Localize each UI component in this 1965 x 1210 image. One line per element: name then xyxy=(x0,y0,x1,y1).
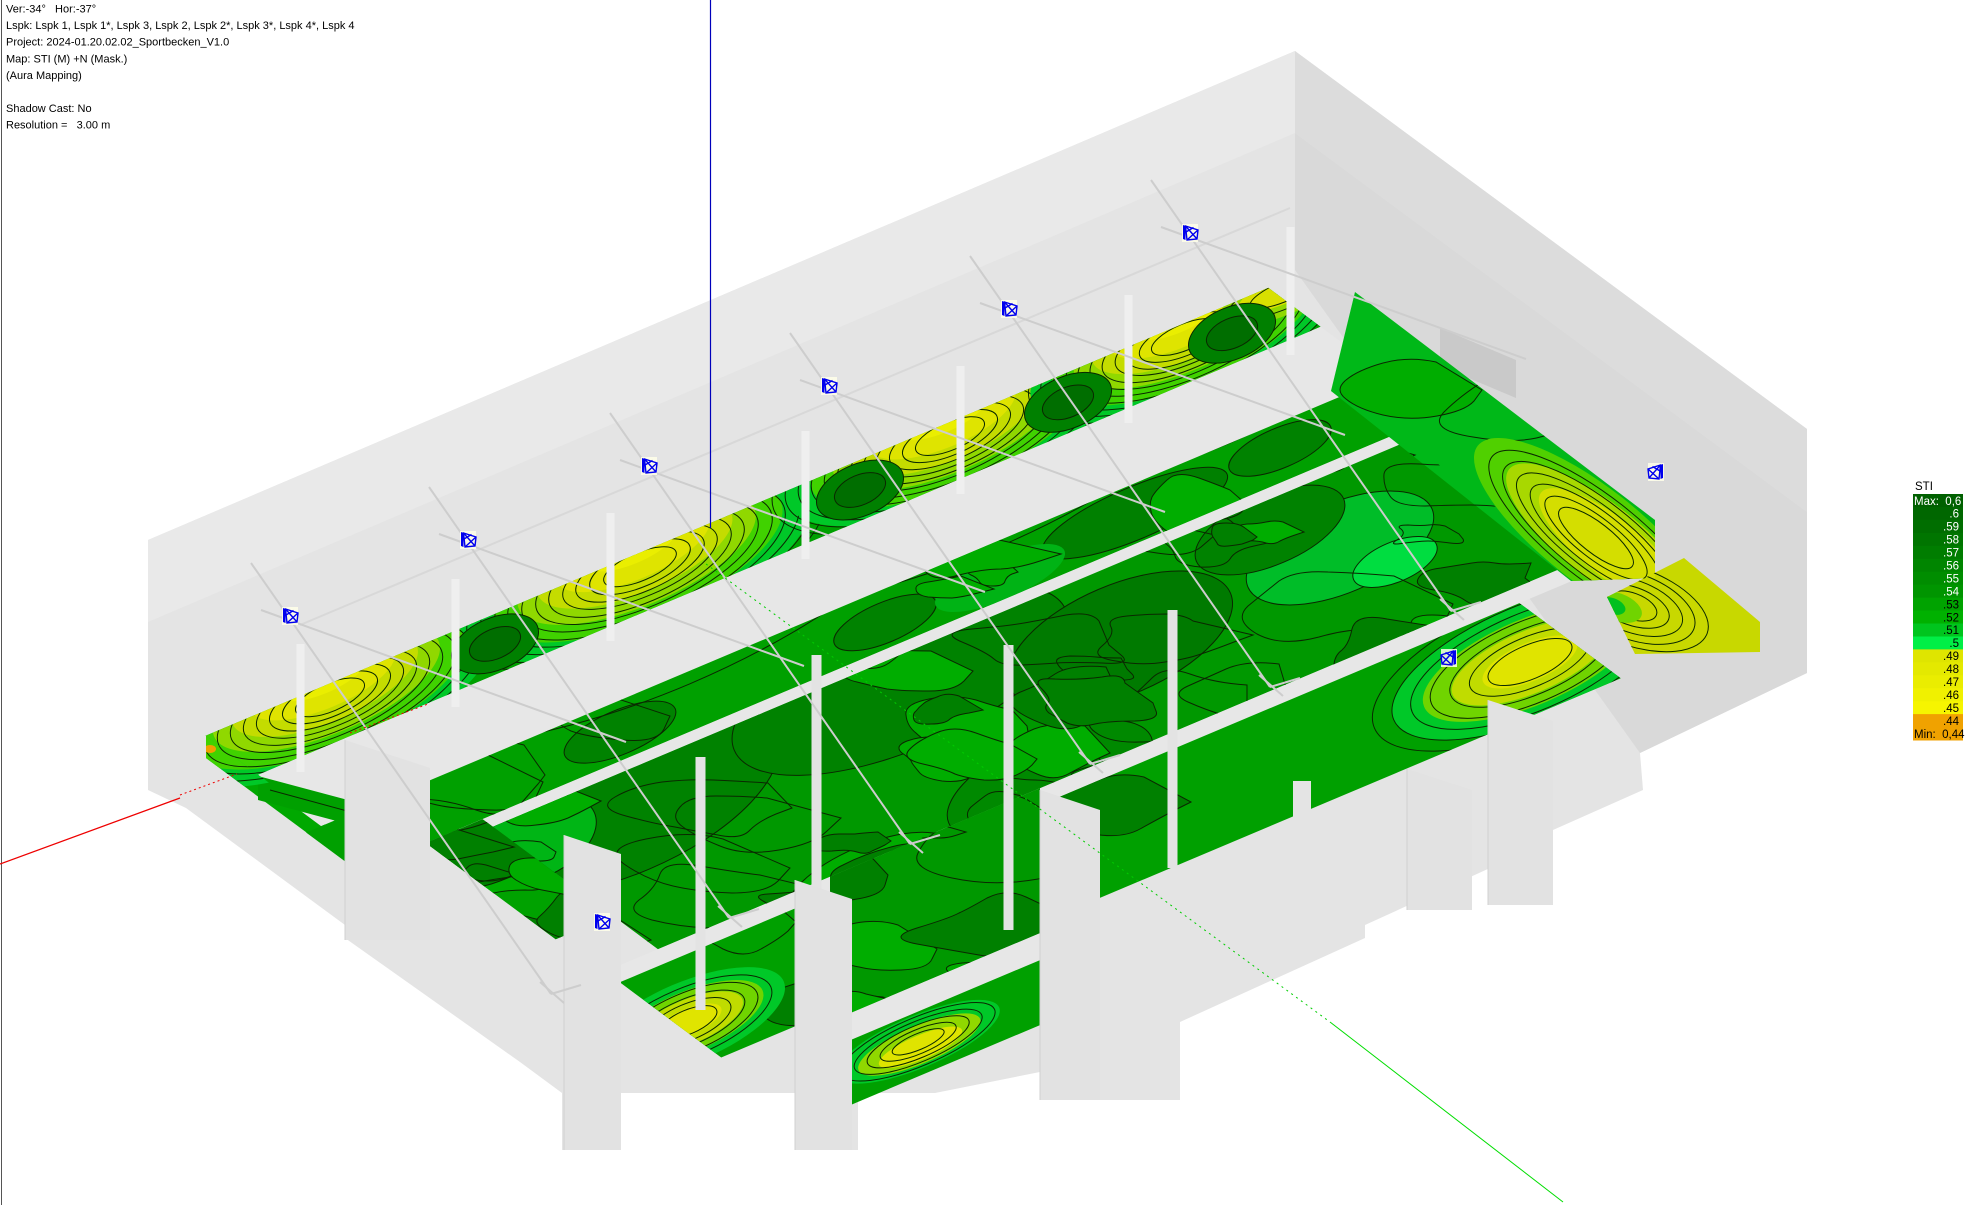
svg-text:.48: .48 xyxy=(1943,664,1959,676)
svg-text:Max: 0,6: Max: 0,6 xyxy=(1914,496,1961,508)
svg-text:.44: .44 xyxy=(1943,716,1960,728)
svg-text:.56: .56 xyxy=(1943,561,1959,573)
svg-text:Map: STI (M) +N (Mask.): Map: STI (M) +N (Mask.) xyxy=(6,53,127,65)
svg-text:Min: 0,44: Min: 0,44 xyxy=(1914,729,1965,741)
svg-text:.51: .51 xyxy=(1943,625,1959,637)
svg-text:(Aura Mapping): (Aura Mapping) xyxy=(6,70,82,82)
svg-text:.45: .45 xyxy=(1943,703,1959,715)
svg-text:Project: 2024-01.20.02.02_Spor: Project: 2024-01.20.02.02_Sportbecken_V1… xyxy=(6,37,229,49)
svg-text:.6: .6 xyxy=(1949,509,1959,521)
svg-text:Resolution = 3.00 m: Resolution = 3.00 m xyxy=(6,120,110,132)
svg-text:.52: .52 xyxy=(1943,612,1959,624)
svg-text:.47: .47 xyxy=(1943,677,1959,689)
svg-text:STI: STI xyxy=(1915,481,1933,493)
svg-text:.59: .59 xyxy=(1943,522,1959,534)
svg-text:.46: .46 xyxy=(1943,690,1959,702)
svg-text:.53: .53 xyxy=(1943,599,1959,611)
svg-text:.57: .57 xyxy=(1943,548,1959,560)
svg-text:.49: .49 xyxy=(1943,651,1959,663)
svg-text:.58: .58 xyxy=(1943,535,1959,547)
svg-text:.5: .5 xyxy=(1949,638,1959,650)
svg-text:Lspk: Lspk 1, Lspk 1*, Lspk 3,: Lspk: Lspk 1, Lspk 1*, Lspk 3, Lspk 2, L… xyxy=(6,20,355,32)
svg-text:Ver:-34° Hor:-37°: Ver:-34° Hor:-37° xyxy=(6,4,96,16)
svg-text:.54: .54 xyxy=(1943,586,1960,598)
svg-text:Shadow Cast: No: Shadow Cast: No xyxy=(6,103,92,115)
svg-text:.55: .55 xyxy=(1943,574,1959,586)
